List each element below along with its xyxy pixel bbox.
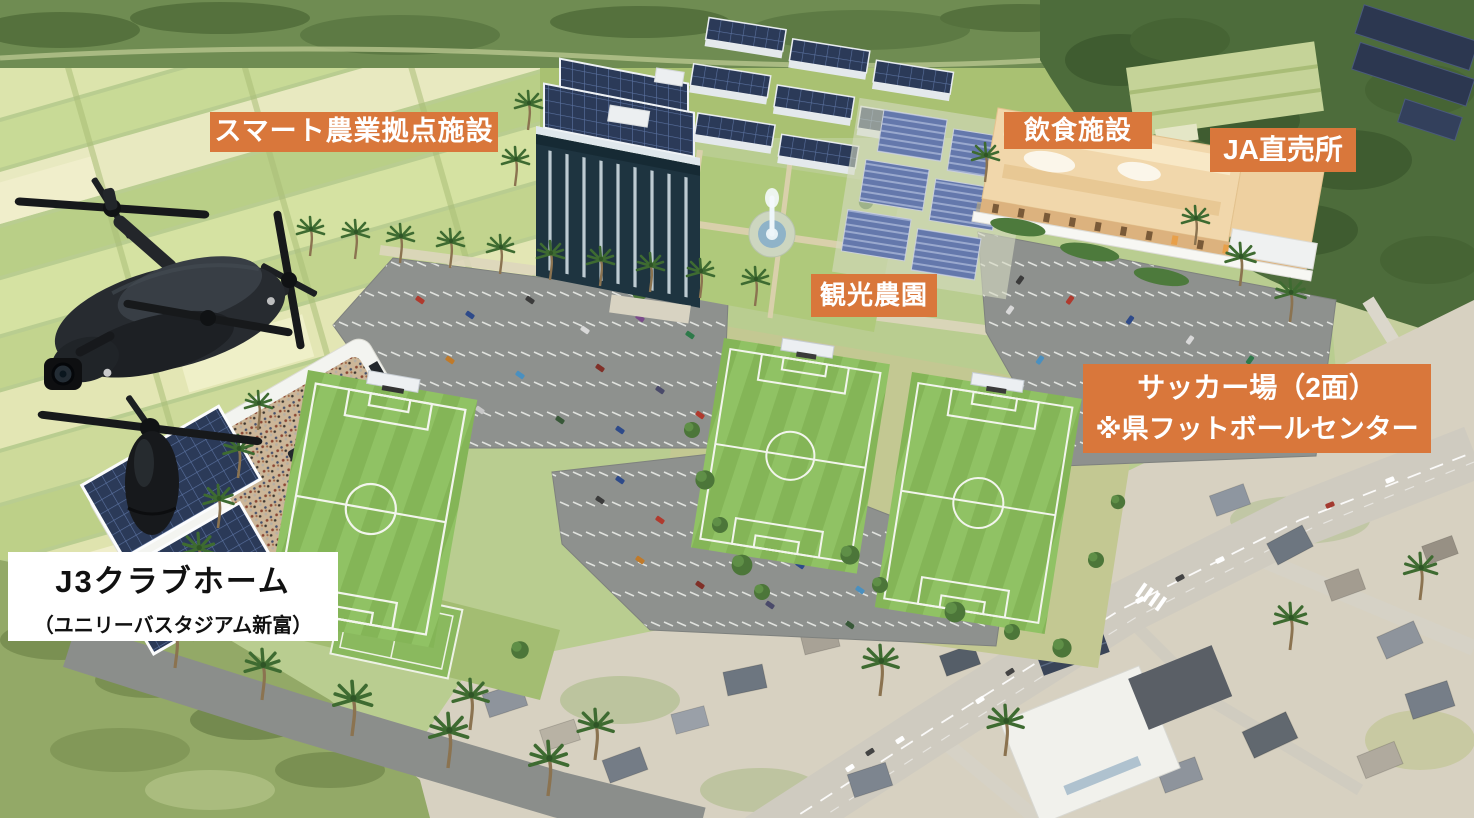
hills [0,0,1180,68]
soccer-pitch-north [691,329,892,574]
label-soccer-fields: サッカー場（2面） ※県フットボールセンター [1083,364,1431,453]
label-stadium-line1: J3クラブホーム [55,556,291,601]
site-aerial-rendering: スマート農業拠点施設 飲食施設 JA直売所 観光農園 サッカー場（2面） ※県フ… [0,0,1474,818]
label-stadium-line2: （ユニリーバスタジアム新富） [34,609,312,638]
label-soccer-fields-line1: サッカー場（2面） [1137,372,1377,404]
label-ja-farm-shop: JA直売所 [1210,128,1356,172]
label-j3-club-home-stadium: J3クラブホーム （ユニリーバスタジアム新富） [8,552,338,641]
label-dining-facility: 飲食施設 [1004,112,1152,149]
label-tourist-farm: 観光農園 [811,274,937,317]
drone-motor-pod [125,431,179,535]
smart-agri-building [536,54,700,308]
label-soccer-fields-line2: ※県フットボールセンター [1095,414,1418,445]
label-smart-agri-facility: スマート農業拠点施設 [210,112,498,152]
